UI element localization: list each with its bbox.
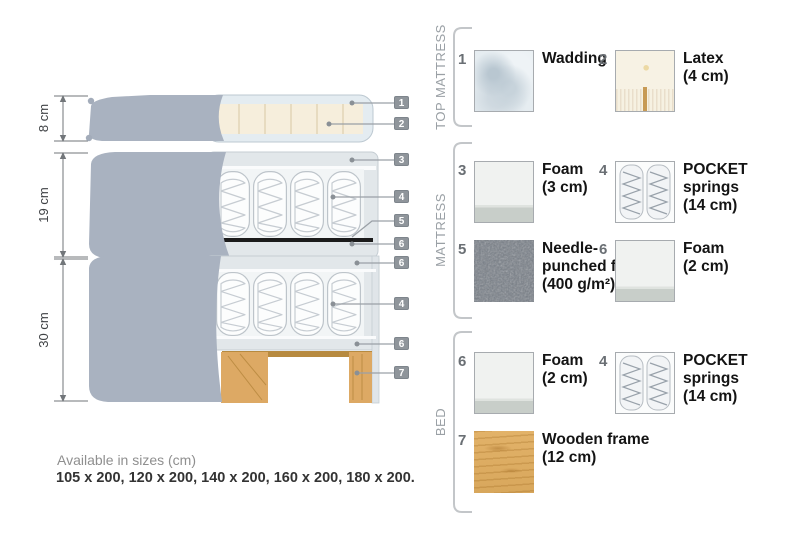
callout-badge-6b: 6 xyxy=(394,256,409,269)
felt-art xyxy=(474,240,534,302)
section-title-mattress: MATTRESS xyxy=(433,170,449,290)
legend-number: 7 xyxy=(458,431,474,449)
dimension-label-bed: 30 cm xyxy=(36,300,52,360)
legend-number: 4 xyxy=(599,161,615,179)
legend-label: Latex xyxy=(683,50,768,68)
callout-badge-4b: 4 xyxy=(394,297,409,310)
legend-number: 3 xyxy=(458,161,474,179)
section-title-bed: BED xyxy=(433,362,449,482)
felt-swatch xyxy=(474,240,534,302)
foam-swatch xyxy=(474,161,534,223)
legend-item-pocket-springs: 4 POCKET springs(14 cm) xyxy=(599,161,768,223)
legend-label: Wooden frame xyxy=(542,431,712,449)
dimension-label-mattress: 19 cm xyxy=(36,175,52,235)
legend-label: Foam xyxy=(683,240,768,258)
pocket-springs-swatch xyxy=(615,352,675,414)
legend-number: 6 xyxy=(458,352,474,370)
section-title-top-mattress: TOP MATTRESS xyxy=(433,17,449,137)
dimension-label-top-mattress: 8 cm xyxy=(36,88,52,148)
legend-number: 4 xyxy=(599,352,615,370)
legend-size: (14 cm) xyxy=(683,388,768,406)
foam-swatch xyxy=(615,240,675,302)
legend-number: 5 xyxy=(458,240,474,258)
legend-size: (14 cm) xyxy=(683,197,768,215)
wood-swatch xyxy=(474,431,534,493)
latex-tassel xyxy=(643,87,647,111)
wooden-frame xyxy=(221,351,372,403)
callout-badge-2: 2 xyxy=(394,117,409,130)
callout-badge-7: 7 xyxy=(394,366,409,379)
callout-badge-1: 1 xyxy=(394,96,409,109)
pocket-springs-swatch xyxy=(615,161,675,223)
top-mattress-section xyxy=(86,95,373,142)
callout-badge-4: 4 xyxy=(394,190,409,203)
legend-item-pocket-springs-bed: 4 POCKET springs(14 cm) xyxy=(599,352,768,414)
available-sizes-caption: Available in sizes (cm) xyxy=(57,452,196,468)
legend-number: 6 xyxy=(599,240,615,258)
callout-badge-6c: 6 xyxy=(394,337,409,350)
legend-item-wooden-frame: 7 Wooden frame(12 cm) xyxy=(458,431,712,493)
callout-badge-6: 6 xyxy=(394,237,409,250)
legend-size: (12 cm) xyxy=(542,449,712,467)
legend-number: 2 xyxy=(599,50,615,68)
pocket-springs-art xyxy=(616,353,674,413)
bed-construction-infographic: 8 cm 19 cm 30 cm 1 2 3 4 5 6 6 4 6 7 TOP… xyxy=(0,0,800,533)
dimension-lines xyxy=(54,95,88,402)
legend-number: 1 xyxy=(458,50,474,68)
callout-badge-5: 5 xyxy=(394,214,409,227)
legend-label: POCKET springs xyxy=(683,161,768,197)
legend-size: (4 cm) xyxy=(683,68,768,86)
legend-item-foam-2cm: 6 Foam(2 cm) xyxy=(599,240,768,302)
legend-item-latex: 2 Latex(4 cm) xyxy=(599,50,768,112)
foam-swatch xyxy=(474,352,534,414)
legend-size: (2 cm) xyxy=(683,258,768,276)
legend-label: POCKET springs xyxy=(683,352,768,388)
pocket-springs-art xyxy=(616,162,674,222)
callout-badge-3: 3 xyxy=(394,153,409,166)
mattress-section xyxy=(89,152,378,258)
wadding-swatch xyxy=(474,50,534,112)
latex-swatch xyxy=(615,50,675,112)
available-sizes-list: 105 x 200, 120 x 200, 140 x 200, 160 x 2… xyxy=(56,470,415,486)
bed-section xyxy=(89,256,379,403)
